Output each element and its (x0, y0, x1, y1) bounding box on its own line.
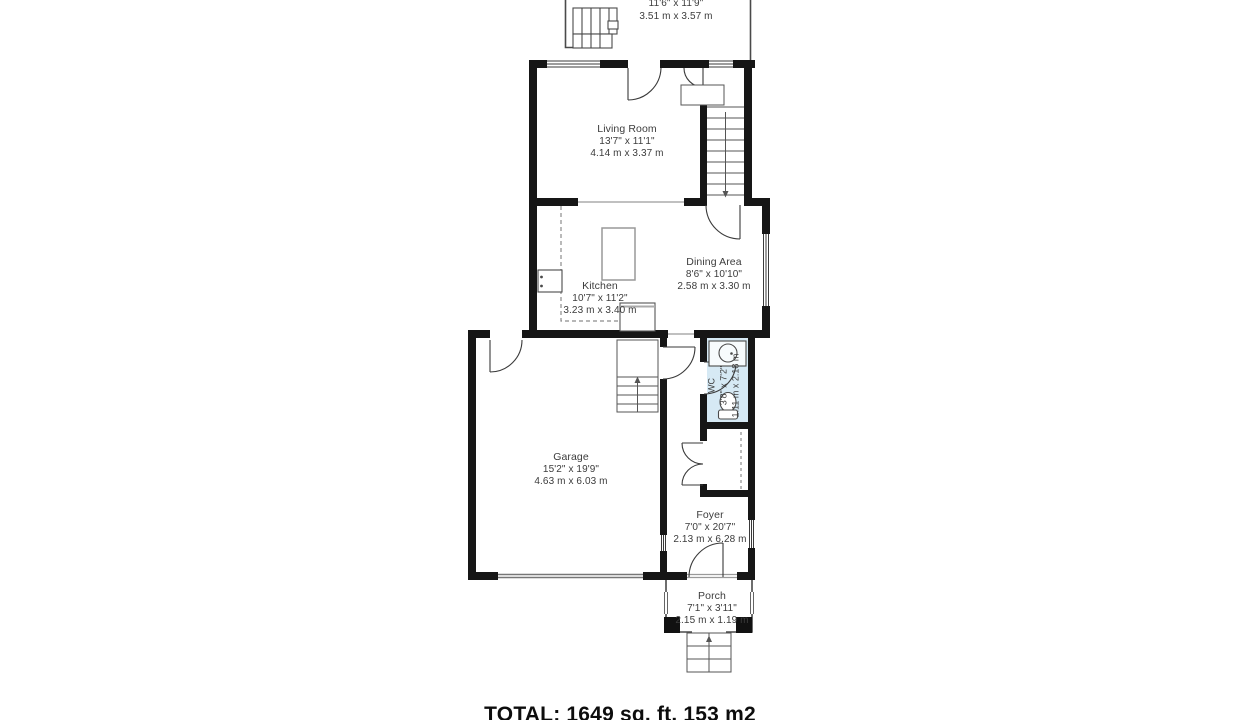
room-dim-imperial: 7'0" x 20'7" (650, 522, 770, 535)
main-stairs (681, 85, 744, 198)
room-dim-metric: 3.23 m x 3.40 m (540, 305, 660, 318)
kitchen-island (602, 228, 635, 280)
room-name: Living Room (567, 123, 687, 136)
garage-stairs (617, 340, 658, 412)
floorplan-canvas: 11'6" x 11'9" 3.51 m x 3.57 m Living Roo… (0, 0, 1240, 720)
room-dim-imperial: 11'6" x 11'9" (616, 0, 736, 11)
upper-stairs (573, 8, 618, 48)
floorplan-drawing (0, 0, 1240, 720)
room-name: Porch (652, 590, 772, 603)
room-dim-metric: 2.13 m x 6.28 m (650, 534, 770, 547)
room-dim-metric: 2.15 m x 1.19 m (652, 615, 772, 628)
room-name: Dining Area (654, 256, 774, 269)
room-dim-imperial: 13'7" x 11'1" (567, 136, 687, 149)
room-label-upper-room: 11'6" x 11'9" 3.51 m x 3.57 m (616, 0, 736, 23)
room-dim-imperial: 15'2" x 19'9" (511, 464, 631, 477)
room-name: Foyer (650, 509, 770, 522)
room-dim-imperial: 10'7" x 11'2" (540, 293, 660, 306)
room-dim-imperial: 8'6" x 10'10" (654, 269, 774, 282)
room-label-porch: Porch 7'1" x 3'11" 2.15 m x 1.19 m (652, 590, 772, 628)
room-dim-imperial: 7'1" x 3'11" (652, 603, 772, 616)
room-label-kitchen: Kitchen 10'7" x 11'2" 3.23 m x 3.40 m (540, 280, 660, 318)
room-label-dining-area: Dining Area 8'6" x 10'10" 2.58 m x 3.30 … (654, 256, 774, 294)
garage-door (498, 575, 643, 578)
room-dim-metric: 2.58 m x 3.30 m (654, 281, 774, 294)
room-name: WC (706, 341, 718, 431)
room-dim-metric: 4.14 m x 3.37 m (567, 148, 687, 161)
room-label-foyer: Foyer 7'0" x 20'7" 2.13 m x 6.28 m (650, 509, 770, 547)
room-label-living-room: Living Room 13'7" x 11'1" 4.14 m x 3.37 … (567, 123, 687, 161)
room-name: Garage (511, 451, 631, 464)
room-dim-metric: 1.11 m x 2.18 m (730, 341, 742, 431)
room-dim-imperial: 3'8" x 7'2" (718, 341, 730, 431)
room-dim-metric: 3.51 m x 3.57 m (616, 11, 736, 24)
room-dim-metric: 4.63 m x 6.03 m (511, 476, 631, 489)
room-label-garage: Garage 15'2" x 19'9" 4.63 m x 6.03 m (511, 451, 631, 489)
room-name: Kitchen (540, 280, 660, 293)
total-area-label: TOTAL: 1649 sq. ft. 153 m2 (458, 703, 782, 720)
room-label-wc: WC 3'8" x 7'2" 1.11 m x 2.18 m (706, 341, 743, 431)
porch-steps (687, 633, 731, 672)
